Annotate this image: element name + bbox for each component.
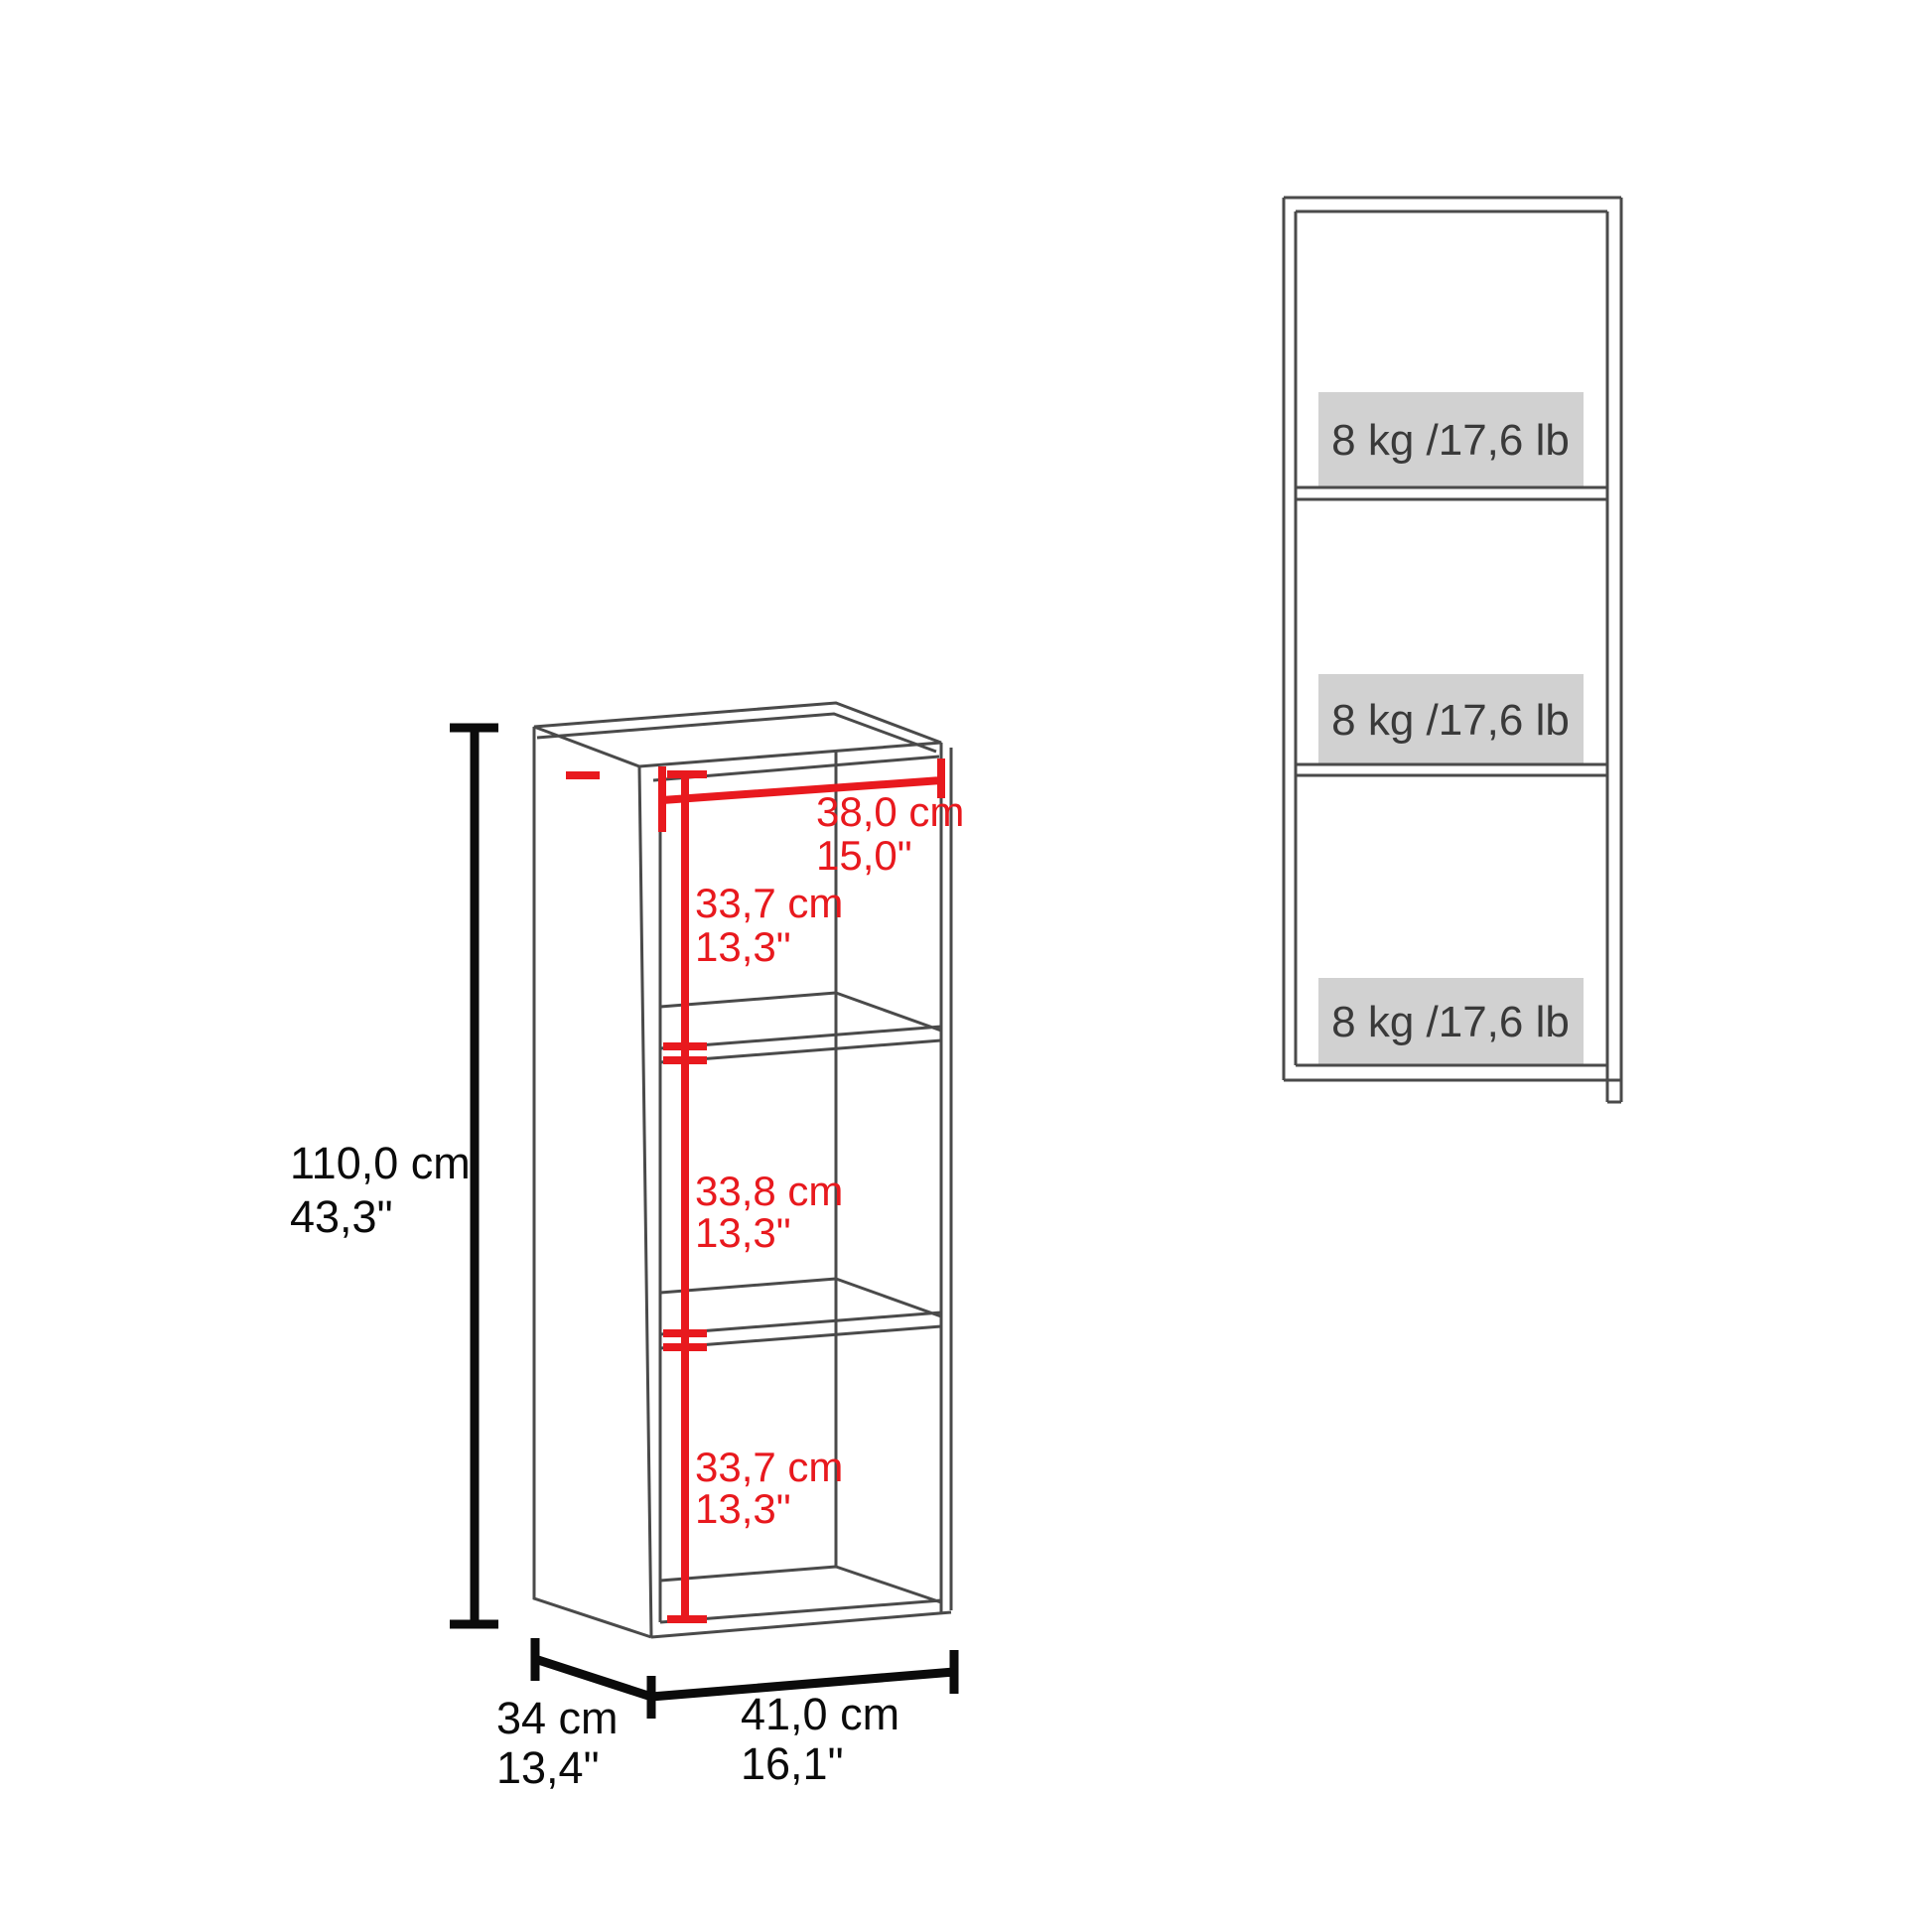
front-view-schematic: 8 kg /17,6 lb 8 kg /17,6 lb 8 kg /17,6 l… [1284,198,1621,1102]
height-dimension: 110,0 cm 43,3" [290,728,498,1624]
front-view-frame [1284,198,1621,1102]
dimension-diagram-page: 110,0 cm 43,3" 34 cm 13,4" 41,0 cm 16,1"… [0,0,1932,1932]
depth-label-cm: 34 cm [496,1693,619,1743]
inner-width-dimension: 38,0 cm 15,0" [566,759,964,879]
depth-dimension: 34 cm 13,4" [496,1638,651,1793]
compartment1-label-in: 13,3" [695,923,791,970]
bookcase-dimension-diagram: 110,0 cm 43,3" 34 cm 13,4" 41,0 cm 16,1"… [0,0,1932,1932]
width-dimension: 41,0 cm 16,1" [651,1650,954,1789]
cabinet-top-face [534,703,941,780]
inner-width-label-cm: 38,0 cm [816,788,964,835]
compartment2-label-in: 13,3" [695,1209,791,1256]
compartment2-label-cm: 33,8 cm [695,1168,843,1214]
width-label-in: 16,1" [741,1738,844,1789]
depth-label-in: 13,4" [496,1742,600,1793]
shelf1-capacity-label: 8 kg /17,6 lb [1331,416,1570,465]
compartment3-label-cm: 33,7 cm [695,1444,843,1490]
cabinet-bottom-panel [660,1567,941,1622]
height-label-cm: 110,0 cm [290,1138,471,1188]
compartment3-label-in: 13,3" [695,1485,791,1532]
shelf3-capacity-label: 8 kg /17,6 lb [1331,998,1570,1046]
compartment1-label-cm: 33,7 cm [695,880,843,926]
inner-width-label-in: 15,0" [816,832,912,879]
height-label-in: 43,3" [290,1191,393,1242]
shelf2-capacity-label: 8 kg /17,6 lb [1331,696,1570,745]
width-label-cm: 41,0 cm [741,1689,899,1739]
compartment-height-dimensions: 33,7 cm 13,3" 33,8 cm 13,3" 33,7 cm 13,3… [663,774,843,1620]
